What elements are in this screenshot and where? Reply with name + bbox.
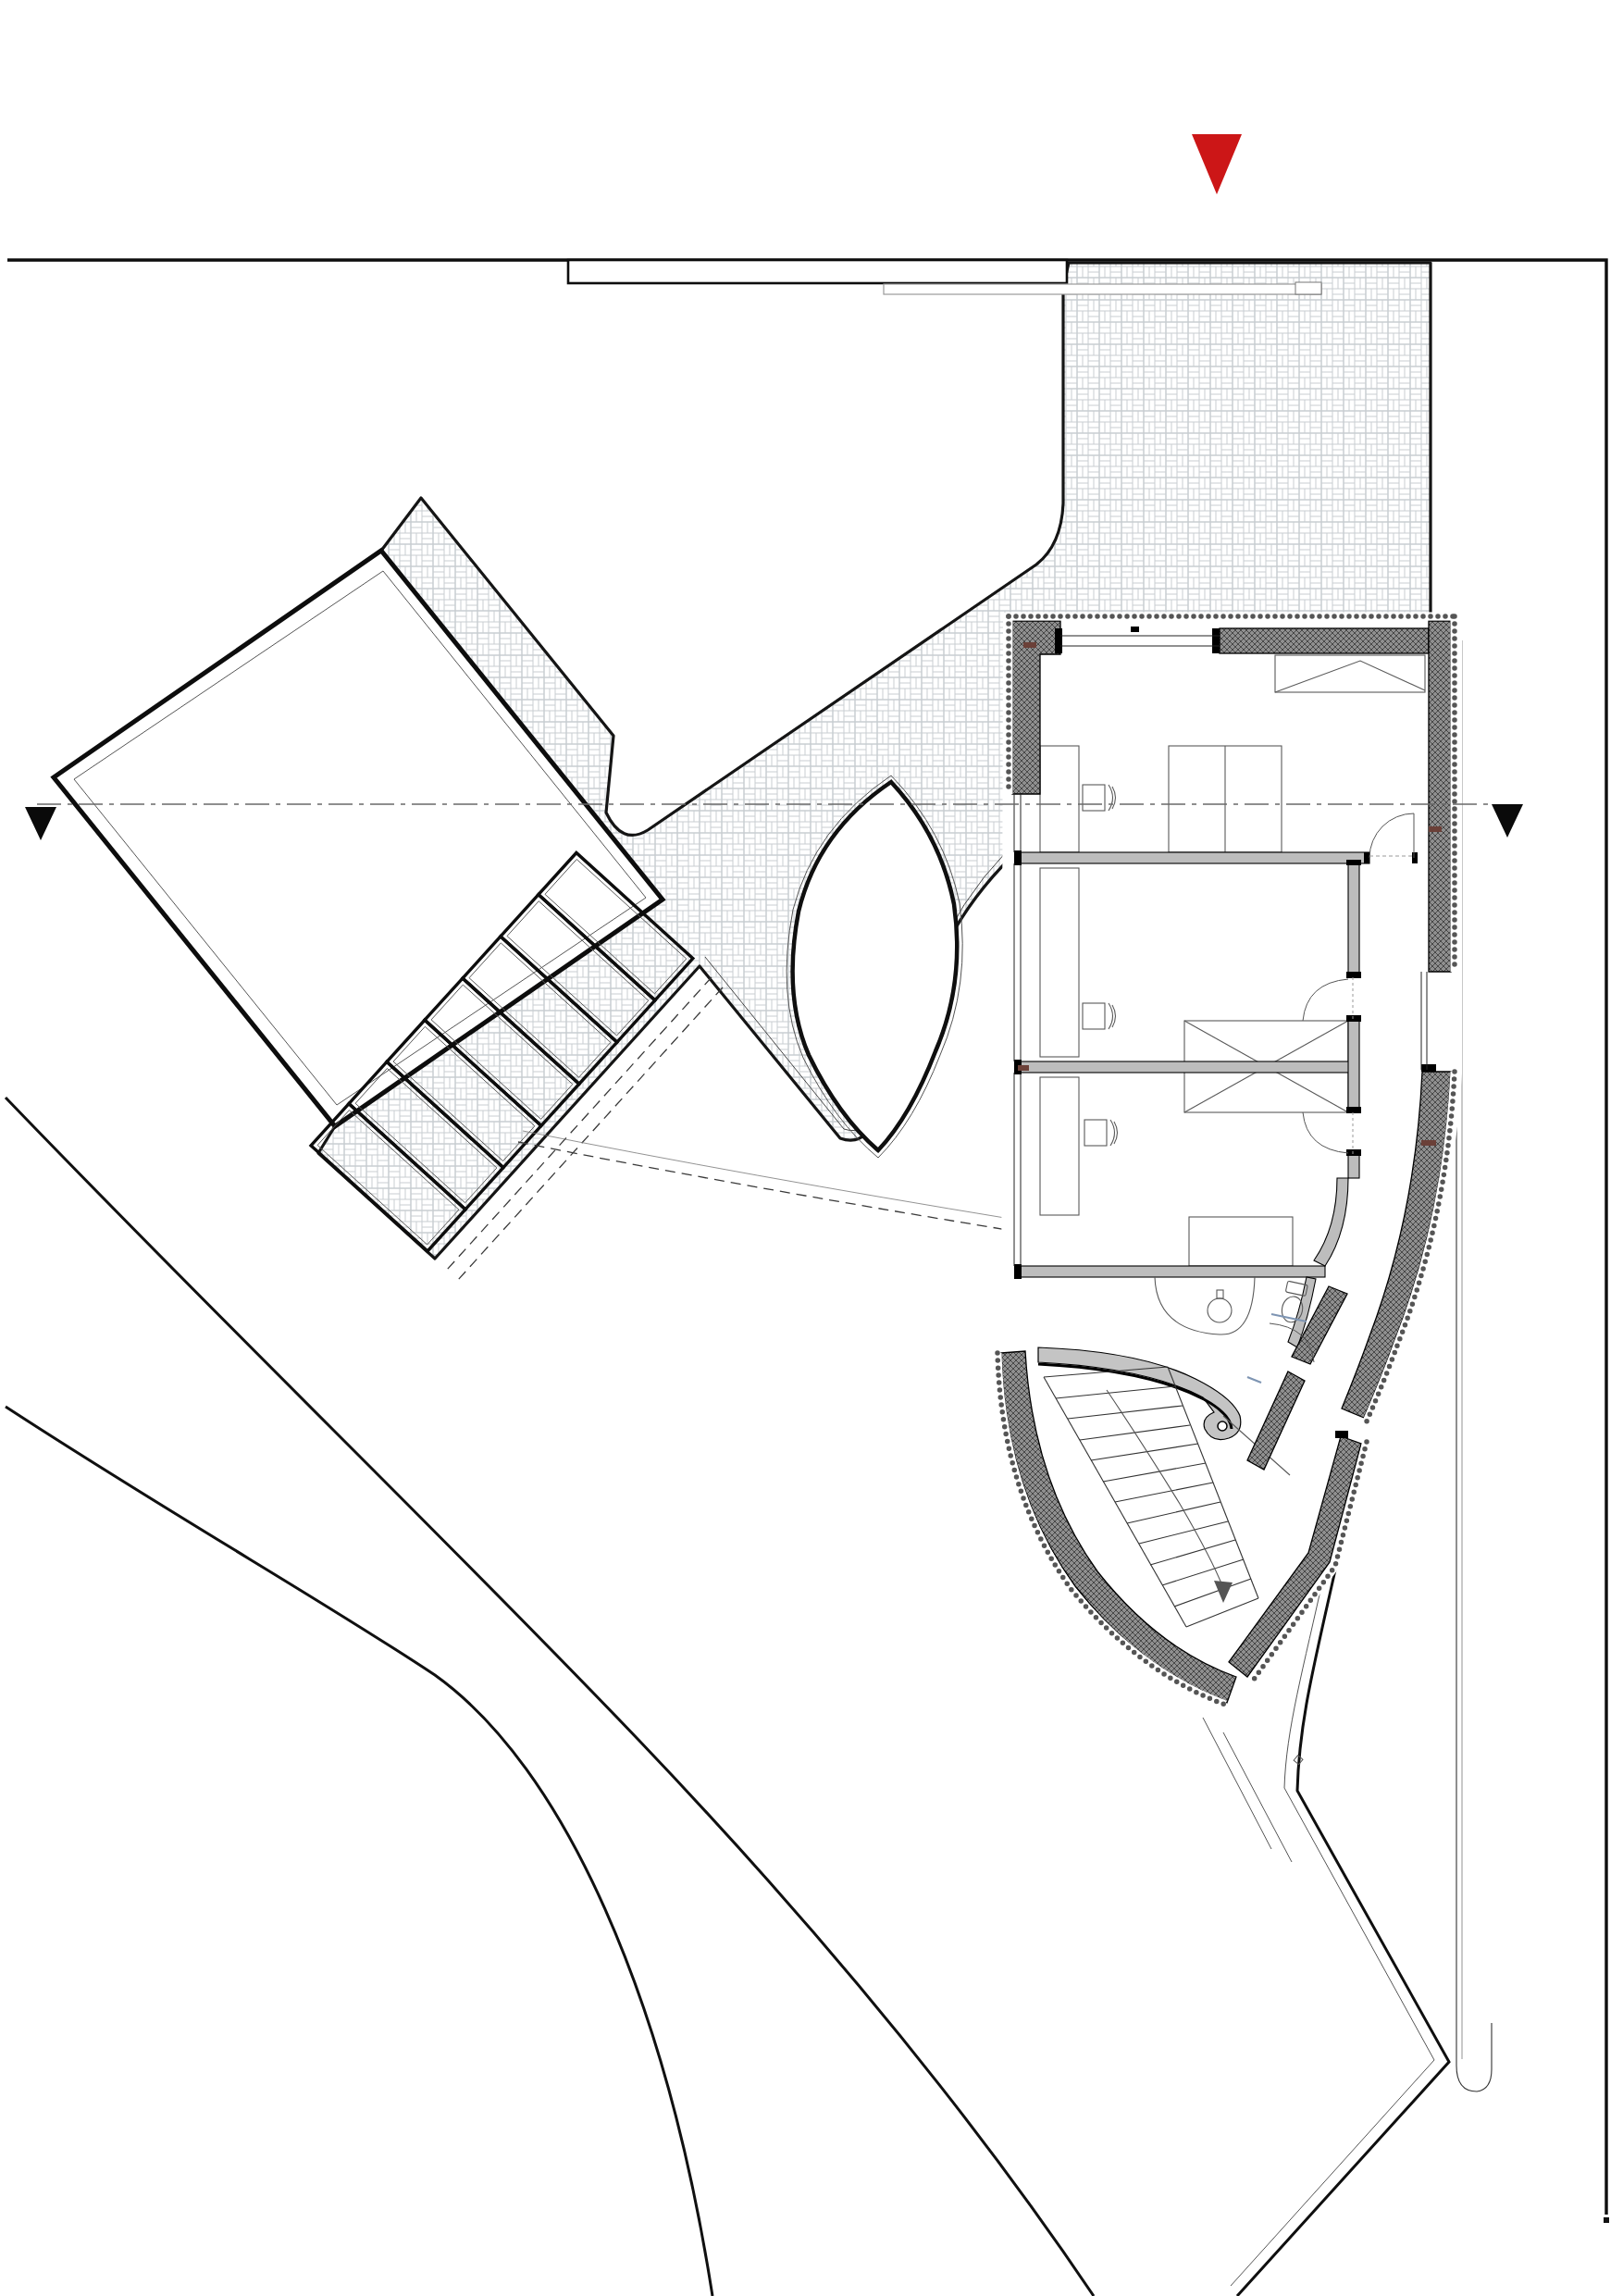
corridor-wall-a [1348, 863, 1359, 977]
wall-right [1429, 621, 1451, 972]
stair-newel [1218, 1421, 1227, 1431]
terrace-lines [1203, 1718, 1303, 1862]
north-red-triangle-icon [1192, 134, 1242, 194]
existing-wall-line [884, 284, 1321, 294]
partition-1 [1018, 852, 1369, 863]
plot-boundary-thin [1231, 1570, 1434, 2286]
street-curve-outer [6, 1098, 1094, 2296]
boundary-notch-band [568, 260, 1067, 283]
corridor-wall-c [1348, 1155, 1359, 1178]
partition-3 [1018, 1266, 1325, 1277]
corridor-wall-b [1348, 1021, 1359, 1112]
section-triangle-left-icon [25, 807, 56, 840]
street-curve-inner [6, 1407, 712, 2296]
section-triangle-right-icon [1492, 804, 1523, 838]
partition-2 [1018, 1061, 1351, 1073]
building [997, 613, 1462, 1708]
site-plan-canvas [0, 0, 1623, 2296]
boundary-end-tick [1604, 2217, 1609, 2223]
existing-wall-end [1295, 282, 1321, 294]
wall-top-band [1220, 628, 1429, 653]
plot-boundary-thick [1237, 1566, 1449, 2296]
